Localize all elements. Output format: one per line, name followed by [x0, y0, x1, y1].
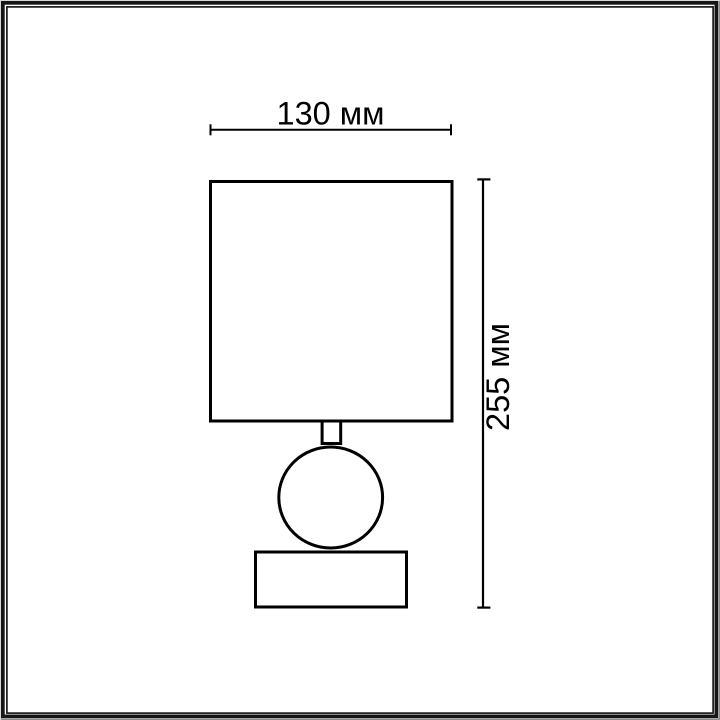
svg-text:130 мм: 130 мм	[277, 96, 385, 132]
svg-text:255 мм: 255 мм	[480, 323, 516, 431]
